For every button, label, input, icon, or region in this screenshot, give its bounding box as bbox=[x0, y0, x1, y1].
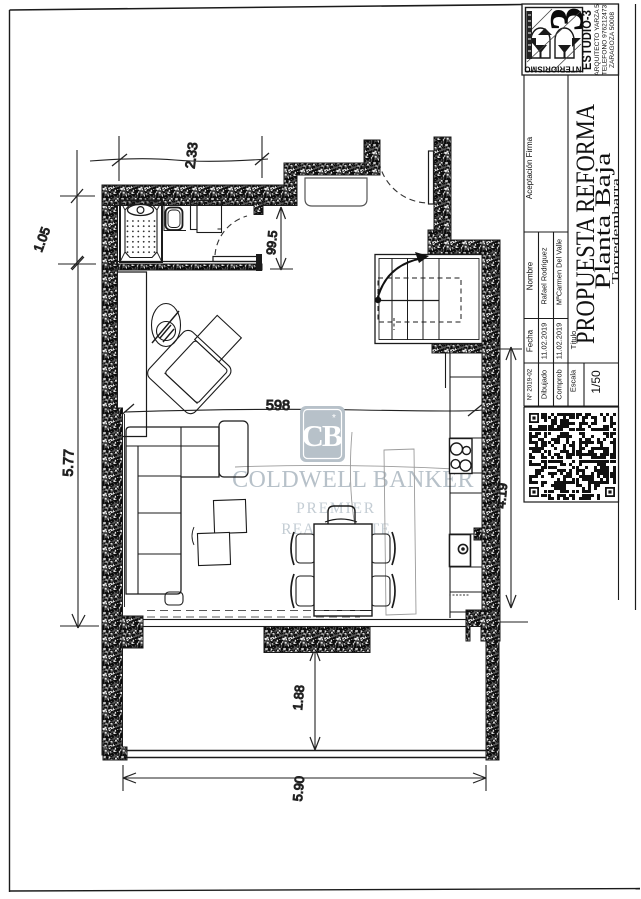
svg-text:99.5: 99.5 bbox=[264, 230, 280, 256]
svg-text:5.77: 5.77 bbox=[60, 449, 77, 477]
svg-text:Nombre: Nombre bbox=[526, 261, 535, 290]
svg-text:Comprob: Comprob bbox=[555, 369, 564, 399]
svg-text:Torredembarra: Torredembarra bbox=[611, 177, 622, 284]
svg-text:11.02.2019: 11.02.2019 bbox=[540, 323, 549, 359]
svg-text:MªCarmen Del Valle: MªCarmen Del Valle bbox=[555, 239, 564, 305]
svg-text:Fecha: Fecha bbox=[526, 329, 535, 352]
svg-text:5.90: 5.90 bbox=[290, 775, 307, 802]
svg-text:Escala: Escala bbox=[569, 369, 578, 392]
svg-text:*: * bbox=[332, 413, 336, 424]
svg-text:INTERIORISMO: INTERIORISMO bbox=[524, 65, 584, 74]
svg-text:COLDWELL BANKER: COLDWELL BANKER bbox=[232, 467, 474, 493]
svg-text:Aceptación Firma: Aceptación Firma bbox=[525, 136, 534, 199]
svg-text:ARQUITECTO YARZA 5: ARQUITECTO YARZA 5 bbox=[594, 4, 601, 76]
svg-text:PREMIER: PREMIER bbox=[296, 500, 376, 517]
svg-text:2.33: 2.33 bbox=[182, 141, 200, 169]
svg-text:1/50: 1/50 bbox=[589, 370, 603, 394]
svg-text:ESTUDIO-3: ESTUDIO-3 bbox=[579, 10, 594, 70]
svg-text:TELEFONO 976212473: TELEFONO 976212473 bbox=[602, 4, 609, 75]
svg-text:Dibujado: Dibujado bbox=[540, 370, 549, 399]
svg-text:ZARAGOZA 50008: ZARAGOZA 50008 bbox=[609, 12, 616, 68]
svg-text:598: 598 bbox=[266, 398, 290, 414]
svg-text:1.88: 1.88 bbox=[290, 684, 307, 711]
svg-text:Rafael Rodriguez: Rafael Rodriguez bbox=[540, 247, 549, 304]
svg-text:11.02.2019: 11.02.2019 bbox=[555, 323, 564, 359]
svg-text:Nº 2019-02: Nº 2019-02 bbox=[527, 368, 534, 400]
